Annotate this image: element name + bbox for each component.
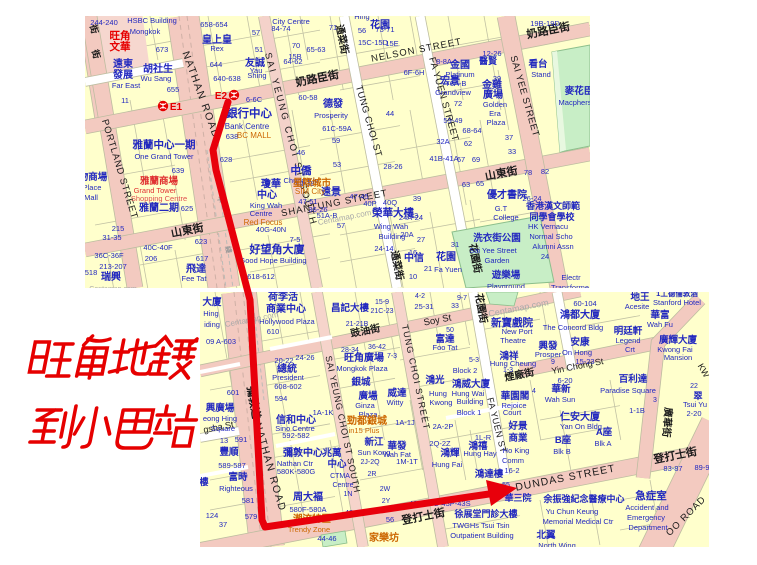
svg-text:60-104: 60-104 [573,299,596,308]
svg-text:50: 50 [446,327,454,334]
svg-text:遊樂場: 遊樂場 [492,269,521,281]
svg-text:78: 78 [524,168,532,177]
svg-text:33: 33 [508,147,516,156]
svg-text:文華: 文華 [109,40,131,53]
svg-text:40C-40F: 40C-40F [143,243,173,252]
svg-text:61C-59A: 61C-59A [322,124,352,133]
svg-text:余振強紀念醫療中心: 余振強紀念醫療中心 [542,493,624,504]
svg-text:89-9: 89-9 [694,463,709,472]
svg-text:Garden: Garden [484,256,509,265]
svg-text:65: 65 [476,179,484,188]
svg-text:看台: 看台 [528,58,548,70]
svg-text:SIM City: SIM City [295,187,325,196]
svg-text:69: 69 [472,155,480,164]
svg-text:Comm: Comm [502,456,524,465]
svg-text:CTMA: CTMA [330,473,350,480]
svg-text:瑞興: 瑞興 [101,270,121,283]
svg-text:優才書院: 優才書院 [486,188,527,201]
svg-text:The Concord Bldg: The Concord Bldg [543,323,603,332]
svg-text:623: 623 [195,237,208,246]
svg-text:7-3: 7-3 [387,353,397,360]
svg-text:銀城: 銀城 [351,376,371,388]
svg-text:Mansion: Mansion [664,353,692,362]
svg-text:28-26: 28-26 [383,162,402,171]
svg-text:65-63: 65-63 [306,45,325,54]
svg-text:Centre: Centre [250,209,273,218]
svg-text:2R: 2R [368,471,377,478]
svg-text:15E: 15E [385,39,398,48]
svg-text:31-35: 31-35 [102,233,121,242]
svg-text:Grandview: Grandview [435,88,471,97]
svg-text:Yu Chun Keung: Yu Chun Keung [546,507,599,516]
svg-text:瓊華: 瓊華 [261,177,281,190]
svg-text:Place: Place [83,183,102,192]
svg-text:68-64: 68-64 [462,126,481,135]
svg-text:好望角大廈: 好望角大廈 [249,242,305,256]
svg-text:TWGHs Tsui Tsin: TWGHs Tsui Tsin [452,521,509,530]
svg-text:富時: 富時 [228,471,248,483]
svg-text:2-20: 2-20 [686,409,701,418]
svg-text:Department: Department [628,523,668,532]
svg-text:Wu Sang: Wu Sang [141,74,172,83]
svg-text:Court: Court [503,408,522,417]
svg-text:09 A-603: 09 A-603 [206,337,236,346]
svg-text:2Q-2Z: 2Q-2Z [429,439,451,448]
svg-text:2W: 2W [380,486,391,493]
svg-text:2J-2Q: 2J-2Q [360,459,380,466]
svg-text:22: 22 [690,383,698,390]
svg-text:Wah Sun: Wah Sun [545,395,576,404]
svg-text:Bank Centre: Bank Centre [225,122,270,131]
svg-text:iding: iding [204,320,220,329]
svg-text:655: 655 [167,85,180,94]
svg-text:41B-41A: 41B-41A [429,154,458,163]
svg-text:Fa Yuen: Fa Yuen [434,265,462,274]
svg-text:昌記大樓: 昌記大樓 [331,302,370,314]
svg-text:徐展堂門診大樓: 徐展堂門診大樓 [453,508,517,519]
svg-text:9-7: 9-7 [457,295,467,302]
svg-text:592-582: 592-582 [282,431,310,440]
svg-text:A座: A座 [596,426,613,438]
svg-text:鴻都大廈: 鴻都大廈 [560,308,601,321]
svg-text:56: 56 [386,515,394,524]
svg-text:206: 206 [145,254,158,263]
svg-text:15B: 15B [288,52,301,61]
svg-text:608-602: 608-602 [274,382,302,391]
svg-text:579: 579 [245,512,258,521]
svg-text:Prosper: Prosper [535,350,562,359]
svg-text:Hung: Hung [429,389,447,398]
svg-text:24-14: 24-14 [374,244,393,253]
svg-text:24A-24: 24A-24 [399,213,423,222]
svg-text:B座: B座 [555,434,572,446]
svg-text:11: 11 [121,96,129,105]
svg-text:21-21B: 21-21B [346,321,369,328]
svg-text:香港漢文師範: 香港漢文師範 [525,200,580,211]
svg-text:6-6C: 6-6C [246,95,263,104]
svg-text:HK Vernacu: HK Vernacu [528,222,568,231]
svg-text:Mongkok: Mongkok [130,27,161,36]
svg-text:新江: 新江 [364,436,384,448]
svg-text:639: 639 [172,166,185,175]
svg-text:40Q: 40Q [383,198,397,207]
svg-text:兆萬: 兆萬 [322,447,342,459]
svg-text:518: 518 [85,268,98,277]
svg-text:Kwong: Kwong [430,398,453,407]
svg-text:Normal Scho: Normal Scho [529,232,572,241]
svg-text:華新: 華新 [551,383,571,395]
svg-text:617: 617 [196,254,209,263]
svg-text:15-9: 15-9 [375,299,389,306]
svg-text:鴻光: 鴻光 [425,374,445,386]
svg-text:580F-580A: 580F-580A [289,505,326,514]
svg-text:4: 4 [532,388,536,395]
svg-text:13: 13 [220,436,228,445]
svg-text:24: 24 [541,252,549,261]
svg-text:Acesite: Acesite [625,302,650,311]
svg-text:Crt: Crt [625,345,636,354]
svg-text:51: 51 [255,45,263,54]
svg-text:1M-1T: 1M-1T [396,457,418,466]
svg-text:樓: 樓 [199,476,208,487]
svg-text:2Y: 2Y [382,498,391,505]
svg-text:發展: 發展 [112,68,133,81]
svg-text:83-87: 83-87 [663,464,682,473]
svg-text:215: 215 [112,224,125,233]
svg-text:6F-6H: 6F-6H [404,68,425,77]
svg-text:27: 27 [417,235,425,244]
svg-text:Era: Era [489,109,502,118]
svg-text:62: 62 [464,139,472,148]
svg-text:10: 10 [409,272,417,281]
svg-text:59-49: 59-49 [443,116,462,125]
svg-text:宏景: 宏景 [440,74,460,87]
svg-text:Blk A: Blk A [594,439,611,448]
svg-text:鴻達樓: 鴻達樓 [475,468,504,480]
svg-text:Building: Building [457,397,484,406]
svg-text:Macphers: Macphers [559,98,592,107]
svg-text:Square: Square [211,424,235,433]
svg-text:1-1B: 1-1B [629,406,645,415]
svg-text:北翼: 北翼 [536,529,556,541]
svg-text:84-74: 84-74 [271,24,290,33]
svg-text:Foo Tat: Foo Tat [433,343,459,352]
svg-text:610: 610 [267,327,280,336]
svg-text:36C-36F: 36C-36F [94,251,124,260]
svg-text:580K-580G: 580K-580G [277,467,316,476]
svg-text:Tsui Yu: Tsui Yu [683,400,707,409]
svg-text:73-71: 73-71 [375,25,394,34]
svg-text:商業: 商業 [508,432,528,444]
svg-text:中心: 中心 [257,188,277,201]
svg-text:57: 57 [252,28,260,37]
svg-text:好景: 好景 [507,420,528,432]
svg-text:醫賢: 醫賢 [479,55,498,66]
svg-text:急症室: 急症室 [635,489,667,502]
svg-text:Prosperity: Prosperity [314,111,348,120]
svg-text:21C-23: 21C-23 [371,308,394,315]
svg-text:中心: 中心 [327,458,347,470]
svg-text:New Port: New Port [502,327,534,336]
svg-text:Theatre: Theatre [500,336,526,345]
svg-text:Legend: Legend [615,336,640,345]
svg-text:5-3: 5-3 [469,357,479,364]
svg-text:19B-19D: 19B-19D [530,19,560,28]
svg-text:Plaza: Plaza [487,118,507,127]
svg-text:Mongkok Plaza: Mongkok Plaza [336,364,388,373]
svg-text:39: 39 [413,194,421,203]
svg-text:Stand: Stand [531,70,551,79]
svg-text:One Grand Tower: One Grand Tower [134,152,194,161]
svg-text:安康: 安康 [570,336,590,348]
svg-text:20A: 20A [400,230,413,239]
svg-text:百利達: 百利達 [619,373,648,385]
svg-text:673: 673 [156,45,169,54]
svg-text:E1: E1 [170,102,183,113]
svg-text:32A: 32A [436,137,449,146]
svg-text:1-3: 1-3 [503,367,513,374]
svg-text:60-58: 60-58 [298,93,317,102]
svg-text:花園: 花園 [436,250,456,263]
svg-text:雅蘭中心一期: 雅蘭中心一期 [133,138,196,151]
svg-text:33: 33 [451,303,459,310]
svg-text:53: 53 [333,160,341,169]
svg-text:82: 82 [541,167,549,176]
svg-text:21: 21 [424,264,432,273]
svg-text:Stanford Hotel: Stanford Hotel [653,298,701,307]
svg-text:658-654: 658-654 [200,20,228,29]
svg-text:591: 591 [235,435,248,444]
svg-text:大廈: 大廈 [202,296,222,308]
svg-text:同學會學校: 同學會學校 [529,211,575,222]
svg-text:Accident and: Accident and [625,503,668,512]
svg-text:Rex: Rex [210,44,224,53]
svg-text:Electr: Electr [561,273,581,282]
svg-text:HSBC Building: HSBC Building [127,16,177,25]
svg-text:Wah Fu: Wah Fu [647,320,673,329]
svg-text:家樂坊: 家樂坊 [369,531,399,544]
svg-text:Trendy Zone: Trendy Zone [288,525,330,534]
svg-text:15C-15D: 15C-15D [358,38,389,47]
svg-text:640-638: 640-638 [213,74,241,83]
svg-text:59: 59 [332,136,340,145]
svg-text:3: 3 [653,397,657,404]
svg-text:39: 39 [493,74,501,83]
svg-text:Ginza: Ginza [355,401,375,410]
svg-text:Shopping Centre: Shopping Centre [131,194,187,203]
svg-text:72: 72 [454,99,462,108]
svg-text:63: 63 [462,180,470,189]
svg-text:24-26: 24-26 [295,353,314,362]
svg-text:37: 37 [505,133,513,142]
svg-text:麥花臣: 麥花臣 [564,85,594,97]
svg-text:4-2: 4-2 [415,293,425,300]
svg-text:70: 70 [292,41,300,50]
svg-text:28-34: 28-34 [341,347,359,354]
svg-text:BC MALL: BC MALL [237,131,272,140]
svg-text:Block 2: Block 2 [453,366,478,375]
svg-text:1N: 1N [344,491,353,498]
svg-text:1A-1J: 1A-1J [395,418,415,427]
svg-text:25-31: 25-31 [414,302,433,311]
svg-text:Good Hope Building: Good Hope Building [239,256,306,265]
svg-text:德發: 德發 [322,97,343,110]
svg-text:Red Focus: Red Focus [244,218,283,227]
svg-text:Ho King: Ho King [503,446,530,455]
svg-text:周大褔: 周大褔 [293,490,323,503]
svg-text:Hung Fai: Hung Fai [432,460,463,469]
svg-text:36-42: 36-42 [368,344,386,351]
svg-text:Righteous: Righteous [219,484,253,493]
svg-text:8-8A: 8-8A [436,57,452,66]
svg-text:31: 31 [451,240,459,249]
svg-text:President: President [272,373,305,382]
svg-text:College: College [493,213,518,222]
svg-text:625: 625 [181,204,194,213]
svg-text:15-23: 15-23 [575,357,594,366]
svg-text:618-612: 618-612 [247,272,275,281]
svg-text:1L-R: 1L-R [475,433,492,442]
svg-text:Emergency: Emergency [627,513,665,522]
svg-text:遠東: 遠東 [113,57,133,70]
svg-text:Sai Yee Street: Sai Yee Street [469,246,517,255]
svg-text:Alumni Assn: Alumni Assn [532,242,573,251]
svg-text:2A-2P: 2A-2P [433,422,454,431]
svg-text:On Hong: On Hong [562,348,592,357]
svg-text:鴻輝: 鴻輝 [440,447,460,459]
svg-text:46: 46 [297,148,305,157]
svg-text:G.T: G.T [495,204,508,213]
svg-text:Far East: Far East [112,81,141,90]
svg-text:581: 581 [242,496,255,505]
svg-text:Witty: Witty [387,398,404,407]
svg-text:Golden: Golden [483,100,507,109]
svg-text:44-46: 44-46 [317,534,336,543]
svg-text:244-240: 244-240 [90,18,118,27]
svg-text:興廣場: 興廣場 [206,402,235,414]
svg-text:Memorial Medical Ctr: Memorial Medical Ctr [543,517,614,526]
svg-text:16: 16 [409,248,417,257]
svg-text:豐順: 豐順 [219,446,239,458]
svg-text:56: 56 [358,26,366,35]
svg-text:洗衣街公園: 洗衣街公園 [473,232,521,244]
svg-text:601: 601 [227,388,240,397]
svg-text:銀行中心: 銀行中心 [226,106,272,120]
svg-text:in15 Plus: in15 Plus [349,426,380,435]
svg-text:37: 37 [219,520,227,529]
svg-text:eong Hing: eong Hing [203,414,237,423]
svg-text:Centre: Centre [332,482,353,489]
svg-text:628: 628 [220,155,233,164]
svg-text:彌敦中心: 彌敦中心 [283,446,323,459]
svg-text:Hung Hay: Hung Hay [463,449,497,458]
svg-text:Shing: Shing [247,71,266,80]
svg-text:Fee Tat: Fee Tat [182,274,208,283]
svg-text:16-2: 16-2 [504,466,519,475]
svg-text:47-45: 47-45 [349,192,368,201]
svg-text:594: 594 [275,394,288,403]
svg-text:9: 9 [551,359,555,366]
svg-text:Mall: Mall [84,193,98,202]
svg-text:Paradise Square: Paradise Square [600,386,656,395]
svg-text:71: 71 [329,23,337,32]
svg-text:Block 1: Block 1 [457,408,482,417]
svg-text:589-587: 589-587 [218,461,246,470]
svg-text:Outpatient Building: Outpatient Building [450,531,513,540]
svg-text:124: 124 [206,511,219,520]
svg-text:Blk B: Blk B [553,447,571,456]
svg-text:1A-1K: 1A-1K [313,408,334,417]
svg-text:7-5: 7-5 [290,235,301,244]
svg-text:213-207: 213-207 [99,262,127,271]
svg-text:644: 644 [210,60,223,69]
svg-text:Hing: Hing [203,309,218,318]
svg-text:44: 44 [386,109,394,118]
